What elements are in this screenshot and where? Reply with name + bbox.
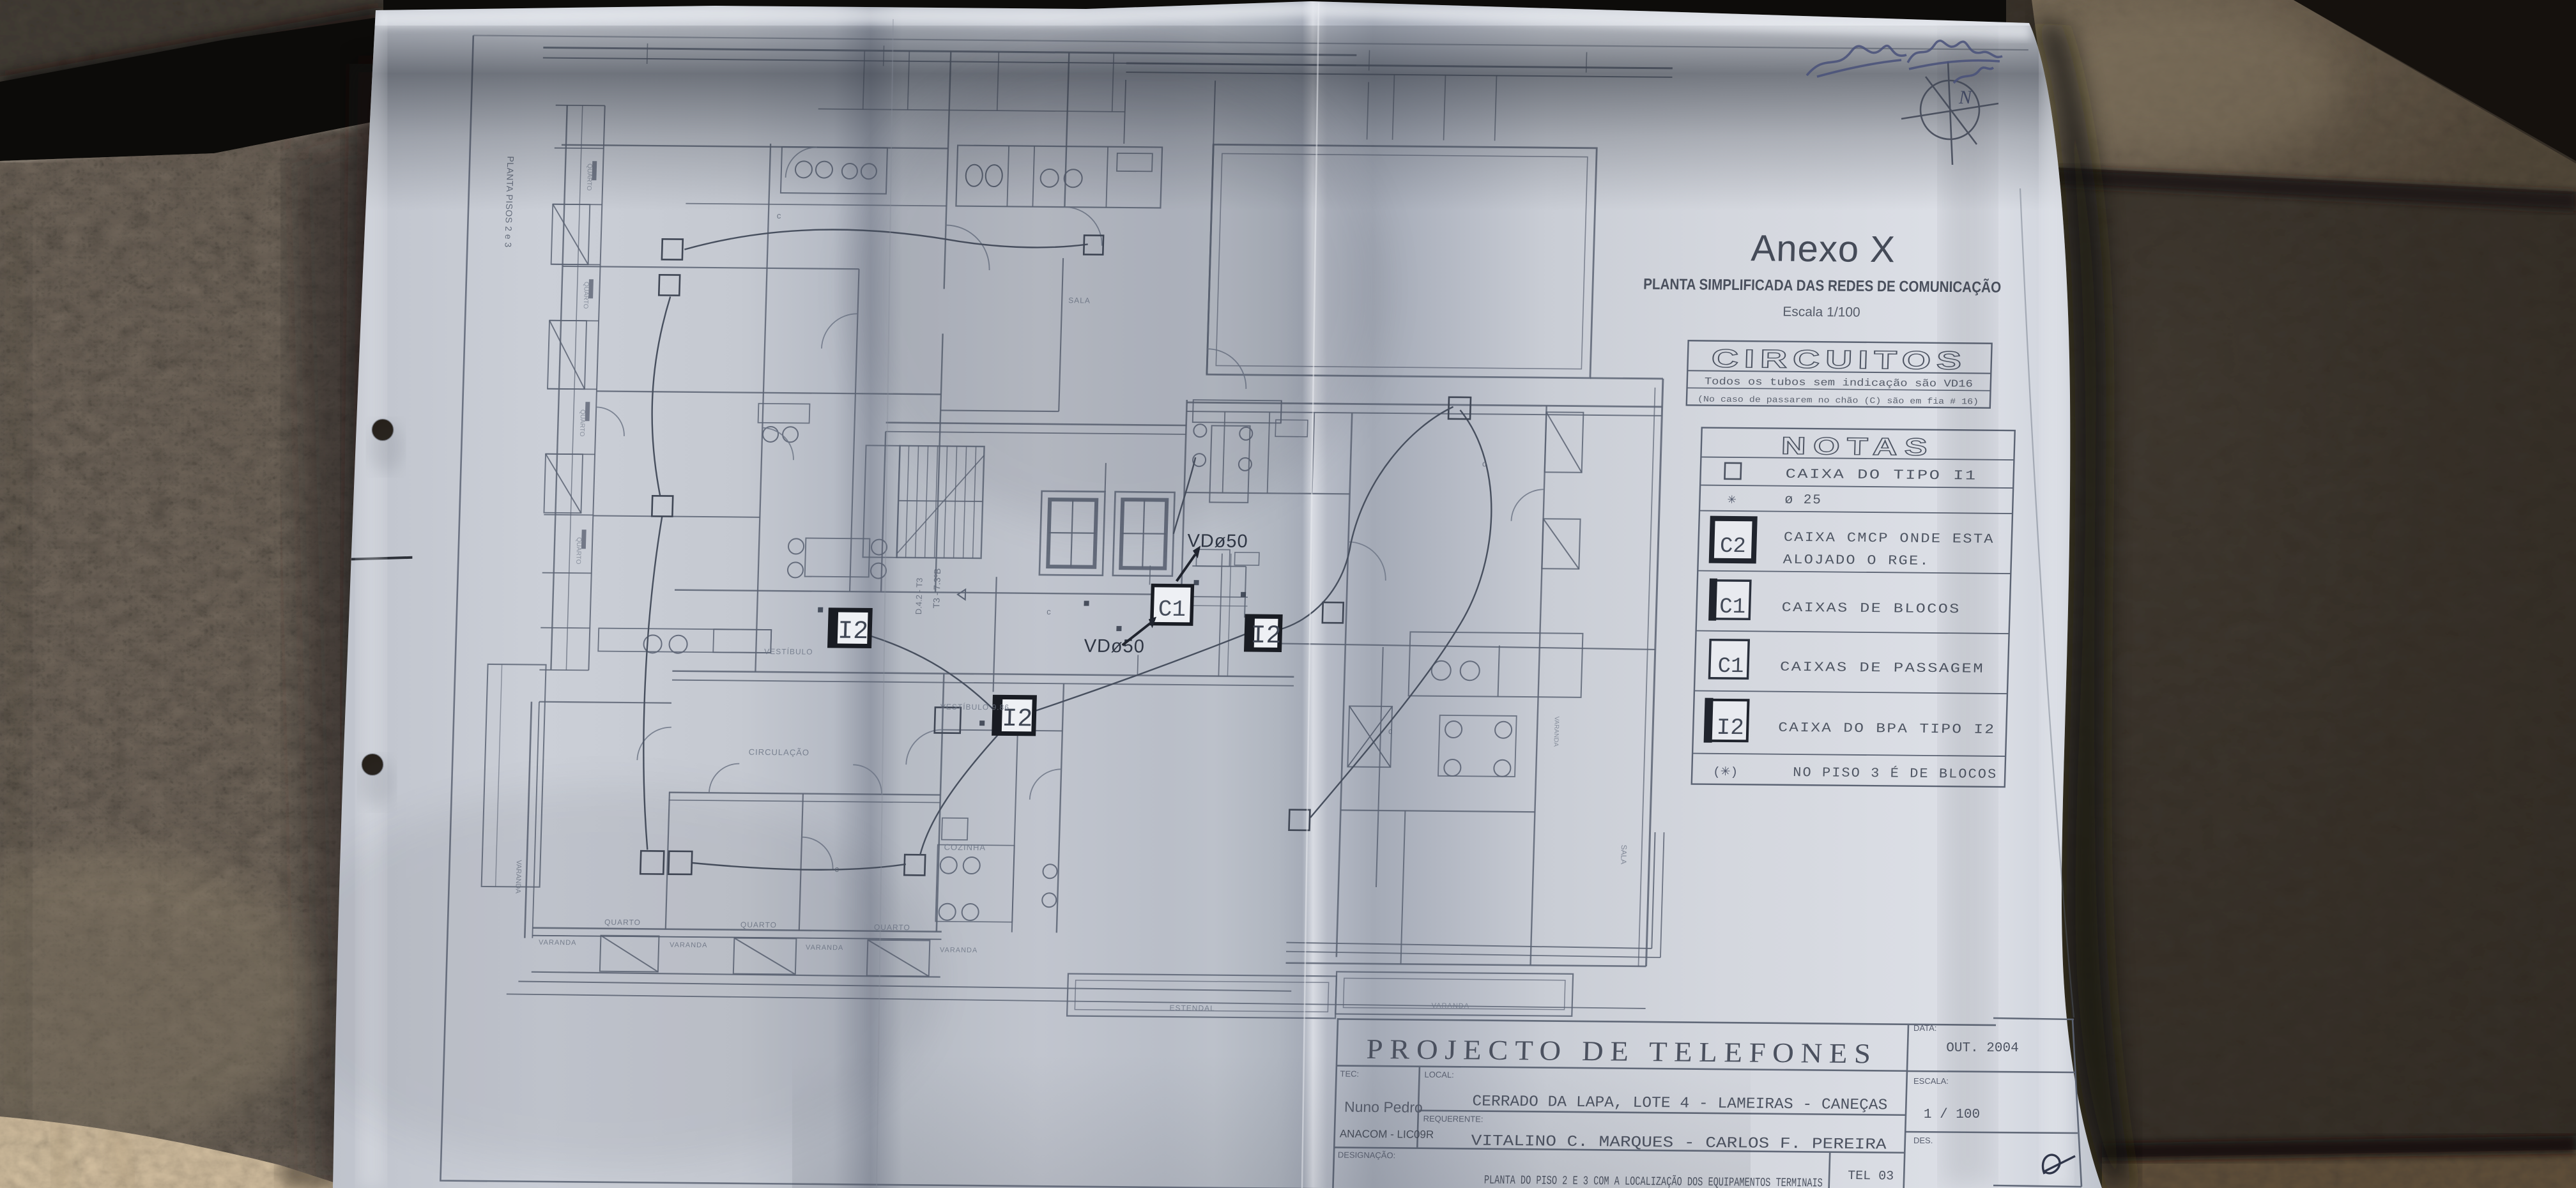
- svg-text:VDø50: VDø50: [1084, 636, 1145, 657]
- svg-text:QUARTO: QUARTO: [574, 537, 582, 565]
- svg-text:✳: ✳: [1727, 494, 1736, 506]
- svg-text:CIRCUITOS: CIRCUITOS: [1711, 345, 1967, 376]
- svg-text:c: c: [1046, 607, 1051, 616]
- svg-text:CIRCULAÇÃO: CIRCULAÇÃO: [749, 747, 810, 758]
- svg-text:ALOJADO O RGE.: ALOJADO O RGE.: [1782, 553, 1930, 569]
- svg-text:c: c: [1388, 726, 1393, 736]
- svg-text:c: c: [1482, 459, 1487, 468]
- svg-text:NOTAS: NOTAS: [1781, 433, 1935, 461]
- svg-text:C1: C1: [1717, 655, 1744, 679]
- svg-text:1 / 100: 1 / 100: [1924, 1108, 1980, 1122]
- svg-text:C1: C1: [1719, 595, 1746, 620]
- svg-text:OUT. 2004: OUT. 2004: [1946, 1041, 2018, 1056]
- svg-text:Anexo X: Anexo X: [1751, 227, 1896, 270]
- svg-text:I2: I2: [1250, 622, 1282, 651]
- svg-text:C1: C1: [1158, 597, 1186, 623]
- svg-text:DATA:: DATA:: [1913, 1023, 1936, 1033]
- svg-text:I2: I2: [1716, 715, 1744, 741]
- svg-text:VARANDA: VARANDA: [1552, 716, 1560, 747]
- svg-text:QUARTO: QUARTO: [582, 282, 590, 309]
- svg-text:D.4.2 - T3: D.4.2 - T3: [914, 578, 924, 615]
- svg-text:(✳): (✳): [1713, 765, 1738, 779]
- svg-text:Escala 1/100: Escala 1/100: [1782, 305, 1860, 320]
- svg-text:VARANDA: VARANDA: [940, 947, 978, 955]
- svg-text:VARANDA: VARANDA: [1431, 1002, 1469, 1010]
- svg-text:ø 25: ø 25: [1784, 493, 1822, 508]
- svg-text:TEL 03: TEL 03: [1848, 1169, 1894, 1184]
- svg-text:VESTÍBULO: VESTÍBULO: [764, 646, 813, 657]
- svg-text:SALA: SALA: [1619, 844, 1629, 864]
- svg-text:C2: C2: [1719, 535, 1746, 559]
- svg-text:DES.: DES.: [1913, 1136, 1933, 1145]
- svg-text:CAIXAS DE BLOCOS: CAIXAS DE BLOCOS: [1781, 601, 1961, 618]
- svg-text:ESCALA:: ESCALA:: [1913, 1076, 1949, 1086]
- svg-text:COZINHA: COZINHA: [944, 842, 986, 853]
- svg-text:c: c: [777, 211, 781, 220]
- svg-text:I2: I2: [838, 618, 869, 646]
- svg-text:ESTENDAL: ESTENDAL: [1169, 1003, 1215, 1013]
- svg-text:N: N: [1958, 87, 1973, 108]
- svg-text:VESTÍBULO 9.86: VESTÍBULO 9.86: [940, 702, 1009, 712]
- svg-text:QUARTO: QUARTO: [578, 409, 586, 437]
- svg-text:T3 - 7.3ºB: T3 - 7.3ºB: [931, 568, 942, 609]
